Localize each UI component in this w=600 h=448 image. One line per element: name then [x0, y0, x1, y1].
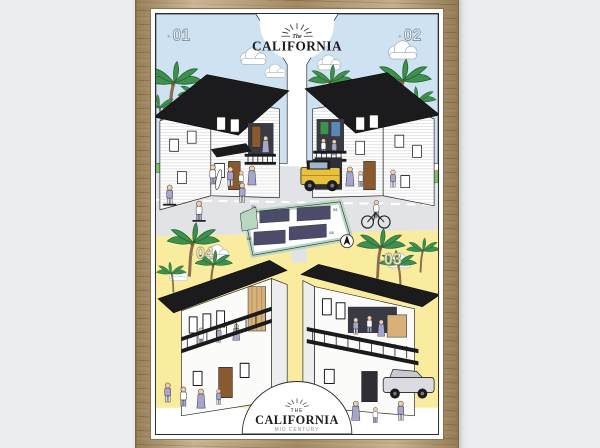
- poster-artwork: 01 02 03 04 ✳ 01 ✳ 02: [154, 12, 440, 436]
- unit-01-label: 01: [173, 27, 191, 44]
- window: [240, 363, 249, 377]
- unit-02-label: 02: [404, 27, 422, 44]
- window: [230, 119, 239, 132]
- window: [413, 145, 422, 157]
- lot-label: 02: [333, 207, 338, 212]
- unit-01-marker: ✳: [167, 34, 171, 40]
- balcony-door: [252, 126, 261, 147]
- window: [193, 371, 202, 385]
- window: [189, 317, 197, 333]
- unit-03-label: 03: [384, 251, 402, 268]
- unit-04-label: 04: [196, 245, 214, 262]
- unit-03-marker: ✳: [378, 258, 382, 264]
- poster-art: [321, 122, 329, 134]
- window: [369, 115, 378, 128]
- illustration-canvas: 01 02 03 04 ✳ 01 ✳ 02: [154, 12, 440, 436]
- poster-matte: 01 02 03 04 ✳ 01 ✳ 02: [150, 8, 444, 440]
- top-logo-title: CALIFORNIA: [252, 38, 342, 53]
- window: [187, 131, 196, 143]
- unit-02-marker: ✳: [398, 34, 402, 40]
- photo-backdrop: 01 02 03 04 ✳ 01 ✳ 02: [0, 0, 600, 448]
- bottom-logo-title: CALIFORNIA: [255, 413, 339, 427]
- window: [178, 172, 187, 184]
- window: [395, 135, 404, 147]
- window: [336, 303, 345, 319]
- front-door: [219, 367, 233, 397]
- entry-door: [362, 371, 378, 401]
- lot-label: 01: [252, 204, 257, 209]
- wood-slat-panel: [387, 315, 407, 337]
- window: [203, 314, 211, 330]
- window: [356, 117, 365, 130]
- skateboard: [192, 220, 206, 222]
- window: [170, 139, 179, 151]
- unit-04-marker: ✳: [190, 252, 194, 258]
- skateboard: [163, 204, 177, 206]
- front-door: [364, 161, 376, 189]
- window: [217, 117, 226, 130]
- lot-label: 04: [247, 236, 252, 241]
- window: [322, 299, 331, 315]
- window: [356, 141, 365, 154]
- lot-label: 03: [329, 230, 334, 235]
- wood-picture-frame: 01 02 03 04 ✳ 01 ✳ 02: [136, 0, 458, 448]
- window: [324, 369, 334, 383]
- poster-art: [331, 122, 340, 136]
- window: [401, 176, 410, 188]
- bottom-logo-subtitle: MID CENTURY: [275, 427, 320, 433]
